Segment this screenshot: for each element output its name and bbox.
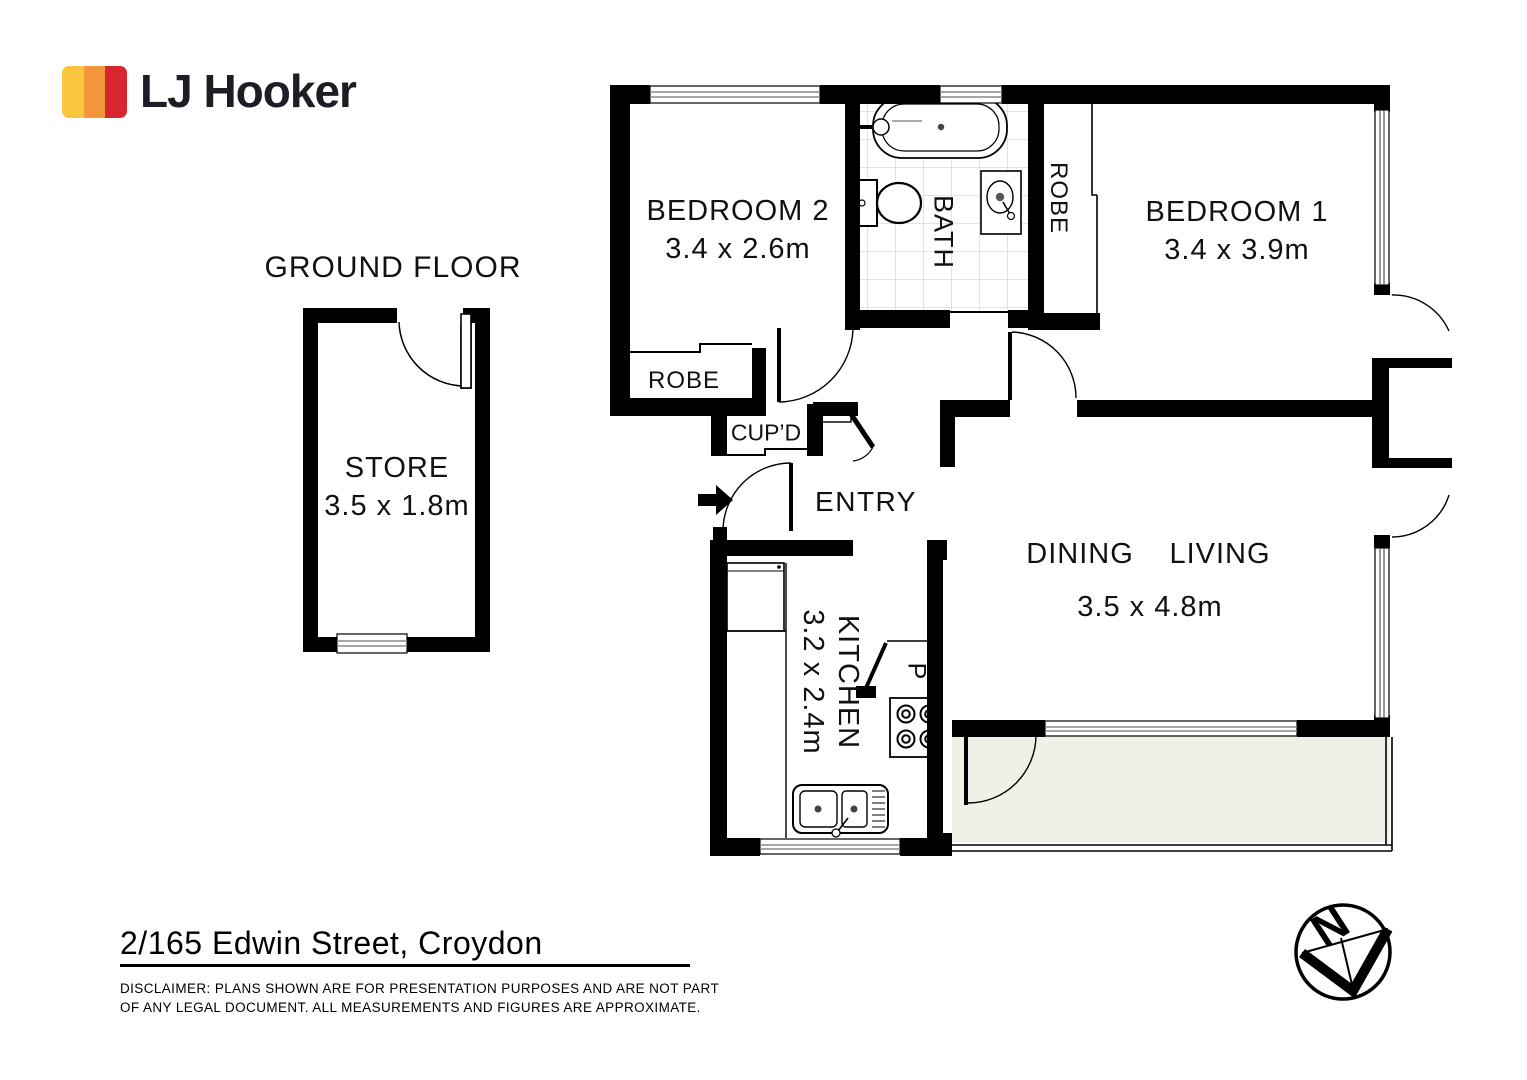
bath-faucet <box>873 119 889 135</box>
room-label-bedroom2: BEDROOM 2 3.4 x 2.6m <box>646 192 829 268</box>
room-label-entry: ENTRY <box>815 486 917 518</box>
floorplan-page: LJ Hooker GROUND FLOOR STORE 3.5 x 1.8m … <box>0 0 1527 1080</box>
window <box>1045 721 1297 736</box>
room-label-dining: DINING <box>1026 535 1134 573</box>
logo-bar-red <box>105 66 127 118</box>
bathtub <box>858 97 1007 158</box>
logo-bar-yellow <box>62 66 84 118</box>
disclaimer: DISCLAIMER: PLANS SHOWN ARE FOR PRESENTA… <box>120 979 719 1017</box>
vanity-sink <box>981 171 1021 234</box>
kitchen-sink <box>793 785 888 837</box>
robe-bedroom2-front <box>630 344 752 352</box>
entry-door-arc <box>723 463 791 531</box>
window <box>1375 110 1389 285</box>
logo-bar-orange <box>84 66 106 118</box>
brand-name: LJ Hooker <box>140 64 356 118</box>
store-dims: 3.5 x 1.8m <box>324 487 469 525</box>
entry-arrow-icon <box>698 485 733 515</box>
bath-drain <box>938 124 944 130</box>
disclaimer-line1: DISCLAIMER: PLANS SHOWN ARE FOR PRESENTA… <box>120 979 719 998</box>
kitchen-dims: 3.2 x 2.4m <box>795 609 830 754</box>
window <box>337 634 407 653</box>
room-label-store: STORE 3.5 x 1.8m <box>324 449 469 525</box>
balcony <box>952 735 1392 851</box>
living-door-arc <box>1392 495 1449 537</box>
floor-label: GROUND FLOOR <box>264 251 521 285</box>
room-label-robe-bedroom1: ROBE <box>1044 162 1072 234</box>
room-label-pantry: P <box>902 663 931 680</box>
store-door-leaf <box>461 314 471 388</box>
window <box>1375 548 1389 718</box>
room-label-bath: BATH <box>928 195 959 269</box>
fridge <box>727 563 784 631</box>
store-name: STORE <box>324 449 469 487</box>
bedroom2-name: BEDROOM 2 <box>646 192 829 230</box>
front-door-leaf <box>851 414 873 447</box>
address: 2/165 Edwin Street, Croydon <box>120 925 543 962</box>
disclaimer-line2: OF ANY LEGAL DOCUMENT. ALL MEASUREMENTS … <box>120 998 719 1017</box>
bedroom2-dims: 3.4 x 2.6m <box>646 230 829 268</box>
room-label-kitchen: KITCHEN 3.2 x 2.4m <box>795 609 865 754</box>
living-dims: 3.5 x 4.8m <box>1077 588 1222 626</box>
window <box>760 839 900 854</box>
bedroom1-name: BEDROOM 1 <box>1145 193 1328 231</box>
kitchen-name: KITCHEN <box>830 609 865 754</box>
hall-door-arc <box>779 329 853 402</box>
room-label-bedroom1: BEDROOM 1 3.4 x 3.9m <box>1145 193 1328 269</box>
window <box>650 86 820 103</box>
ljhooker-logo-icon <box>62 66 127 118</box>
cupboard-front <box>725 449 807 455</box>
address-underline <box>120 964 690 967</box>
bedroom1-door-arc <box>1012 332 1076 398</box>
bedroom1-balustrade-door-arc <box>1392 295 1449 331</box>
room-label-living: LIVING <box>1169 535 1270 573</box>
toilet <box>856 180 921 226</box>
window <box>940 86 1002 103</box>
room-label-robe-bedroom2: ROBE <box>648 367 720 395</box>
floorplan-drawing <box>0 0 1527 1080</box>
room-label-cupboard: CUP’D <box>731 420 801 447</box>
bedroom1-dims: 3.4 x 3.9m <box>1145 231 1328 269</box>
